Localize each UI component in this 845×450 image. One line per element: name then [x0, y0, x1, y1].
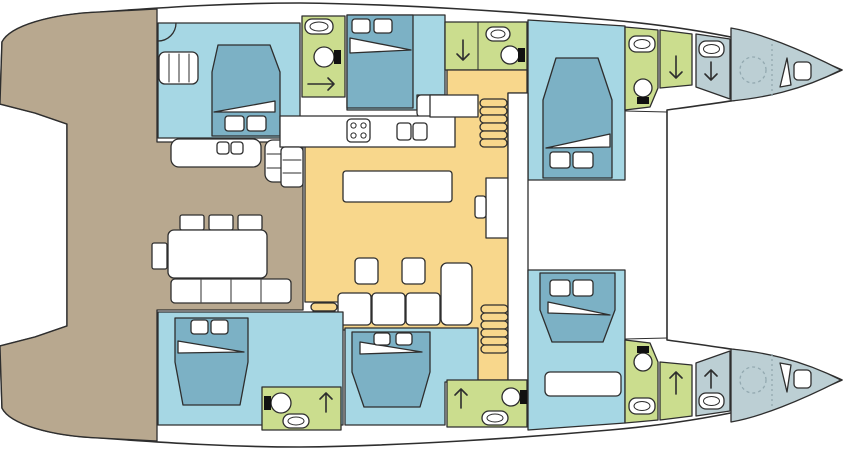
cabin-port-fwd — [528, 20, 625, 180]
nav-desk — [486, 178, 508, 238]
island-counter — [343, 171, 452, 202]
head-port-aft — [302, 16, 345, 97]
bench-seat — [171, 279, 291, 303]
sofa-cushion — [441, 263, 472, 325]
wet-bar-counter — [171, 139, 261, 167]
pillow — [374, 333, 390, 345]
pillow — [550, 152, 570, 168]
washbasin-icon — [699, 41, 724, 57]
toilet-icon — [502, 388, 520, 406]
deck-hatch-icon — [794, 370, 811, 388]
pillow — [191, 320, 208, 334]
stairs-starboard-fwd — [481, 305, 508, 353]
toilet-icon — [501, 46, 519, 64]
pillow — [247, 116, 266, 131]
toilet-icon — [634, 79, 652, 97]
pillow — [396, 333, 412, 345]
toilet-icon — [271, 393, 291, 413]
toilet-icon — [634, 353, 652, 371]
washbasin-icon — [482, 411, 508, 425]
washbasin-icon — [699, 393, 724, 409]
deck-hatch-icon — [794, 62, 811, 80]
crew-starboard — [696, 351, 730, 416]
pillow — [211, 320, 228, 334]
toilet-tank — [637, 97, 649, 104]
pillow — [550, 280, 570, 296]
galley-sink-icon — [413, 123, 427, 140]
toilet-tank — [334, 50, 341, 64]
chair — [180, 215, 204, 230]
chair — [209, 215, 233, 230]
head-starboard-mid — [447, 380, 527, 427]
toilet-icon — [314, 47, 334, 67]
toilet-tank — [637, 346, 649, 353]
pillow — [352, 19, 370, 33]
bow-starboard — [731, 349, 841, 422]
bar-sink-icon — [231, 142, 243, 154]
fridge — [281, 147, 303, 187]
bar-sink-icon — [217, 142, 229, 154]
bow-port — [731, 28, 841, 101]
galley-sink-icon — [397, 123, 411, 140]
chair — [152, 243, 167, 269]
head-starboard-aft — [262, 387, 341, 430]
chair — [238, 215, 262, 230]
sofa-cushion — [406, 293, 440, 325]
toilet-tank — [264, 396, 271, 410]
corridor-port-fwd — [660, 30, 692, 88]
dining-table — [168, 230, 267, 278]
toilet-tank — [520, 390, 527, 404]
head-port-mid — [445, 22, 527, 70]
washbasin-icon — [629, 36, 655, 52]
wardrobe — [159, 52, 198, 84]
cabin-starboard-fwd — [528, 270, 625, 430]
cabin-port-aft — [158, 23, 300, 138]
stove-icon — [347, 119, 370, 142]
stairs-port — [480, 99, 507, 147]
bed — [212, 45, 280, 136]
footstool — [355, 258, 378, 284]
sofa-cushion — [372, 293, 405, 325]
pillow — [573, 152, 593, 168]
pillow — [374, 19, 392, 33]
footstool — [402, 258, 425, 284]
pillow — [225, 116, 244, 131]
nav-seat — [475, 196, 486, 218]
berth-seat — [545, 372, 621, 396]
washbasin-icon — [629, 398, 655, 414]
corridor-starboard-fwd — [660, 362, 692, 420]
pillow — [573, 280, 593, 296]
washbasin-icon — [283, 414, 309, 428]
crew-port — [696, 34, 730, 99]
washbasin-icon — [486, 27, 510, 41]
worktop — [430, 95, 478, 117]
deck-plan-canvas: Catamaran yacht deck plan — top view — [0, 0, 845, 450]
salon-front-bulkhead — [508, 93, 528, 380]
toilet-tank — [518, 48, 525, 62]
washbasin-icon — [305, 19, 333, 34]
head-port-fwd — [625, 27, 658, 110]
head-starboard-fwd — [625, 340, 658, 423]
